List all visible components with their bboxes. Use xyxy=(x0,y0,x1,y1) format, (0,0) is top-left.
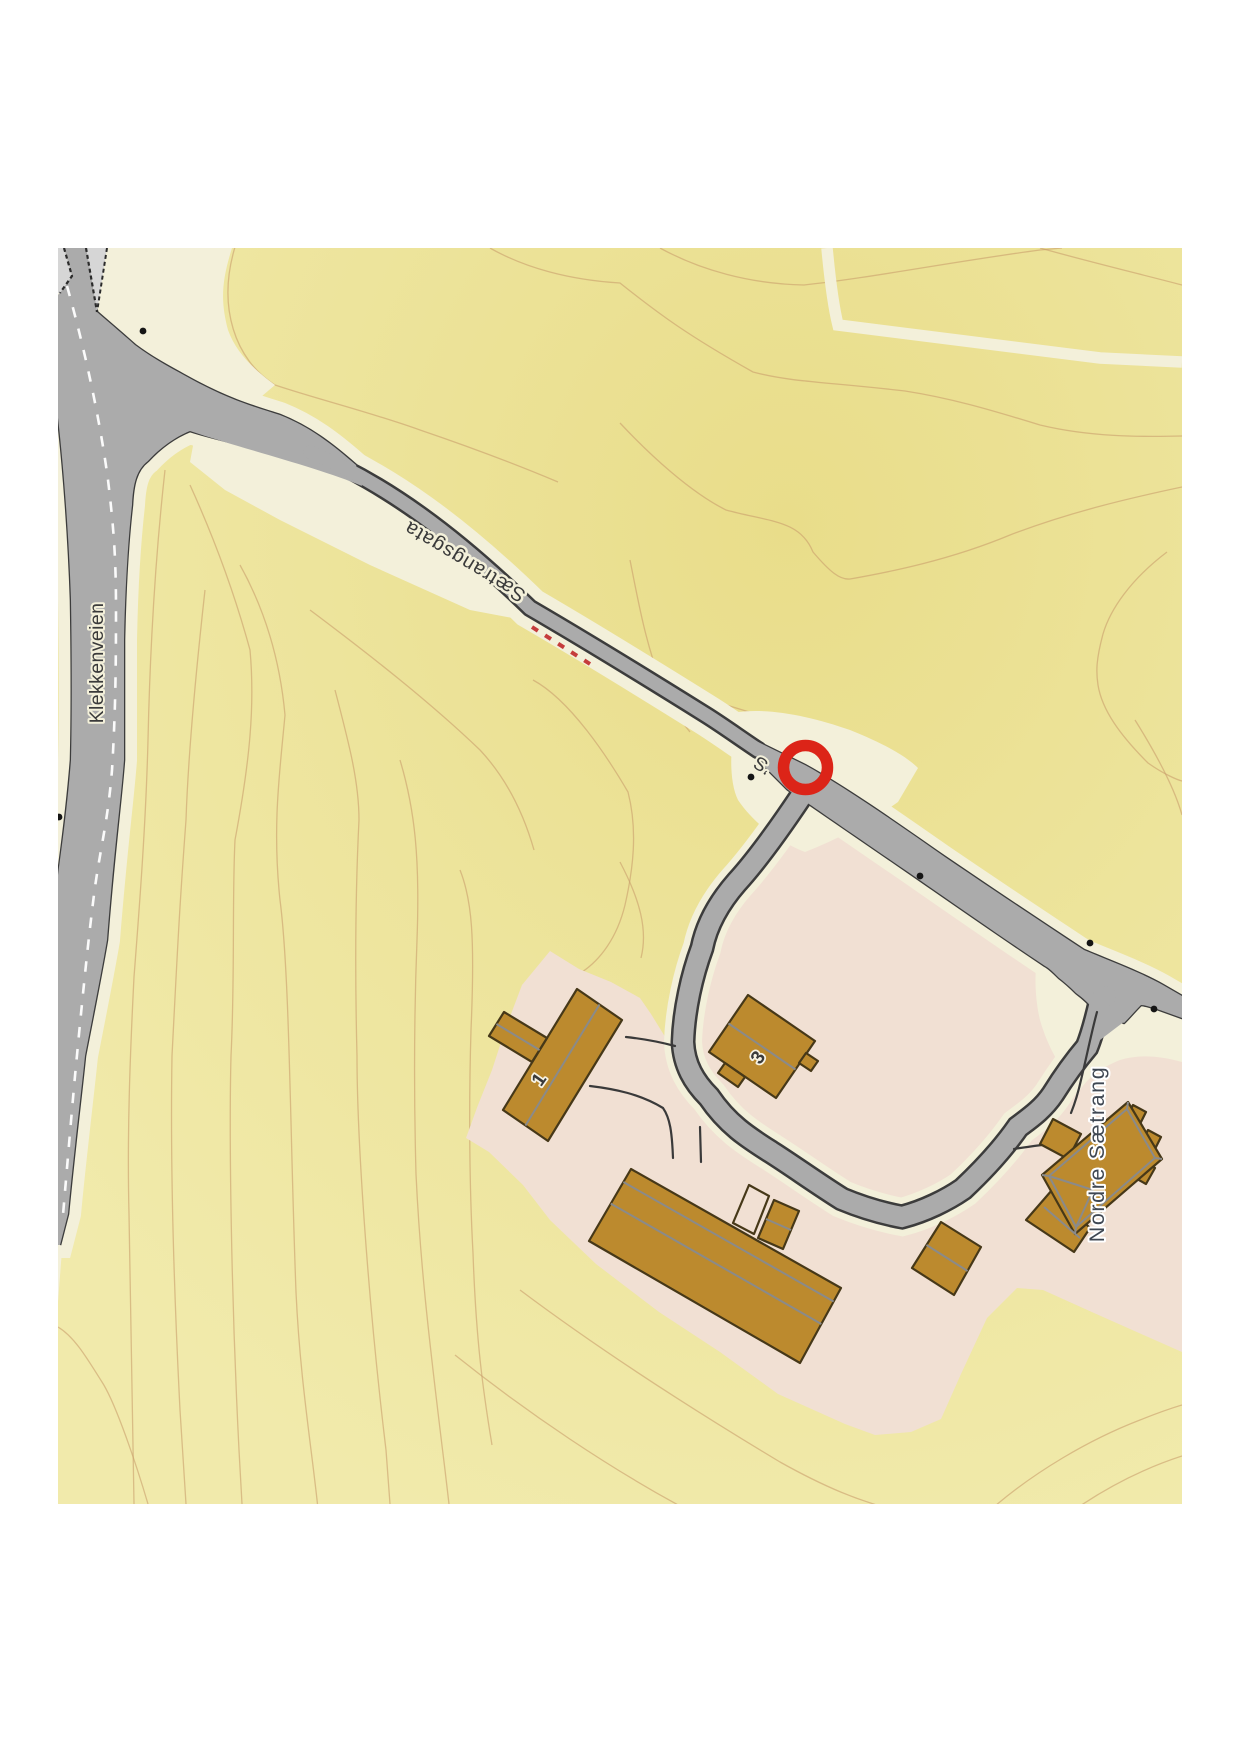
svg-text:Klekkenveien: Klekkenveien xyxy=(86,603,108,724)
svg-text:Nordre Sætrang: Nordre Sætrang xyxy=(1085,1066,1109,1243)
